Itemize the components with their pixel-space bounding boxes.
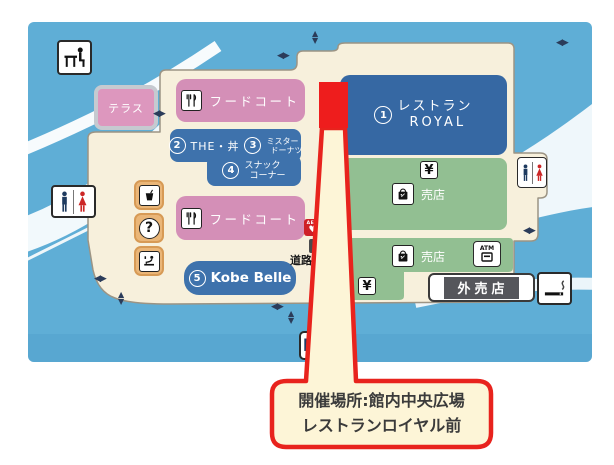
outside-shop-box: 外売店 (428, 273, 535, 302)
baby-care-icon (134, 246, 164, 276)
restaurant-royal-block: 1 レストラン ROYAL (340, 75, 507, 155)
kobe-belle-block: 5 Kobe Belle (184, 261, 296, 295)
royal-label-2: ROYAL (397, 115, 472, 131)
shop-upper-row: 売店 (392, 183, 445, 205)
royal-label-1: レストラン (397, 99, 472, 115)
food-court-1-block: フードコート (176, 79, 305, 122)
shopping-bag-icon (392, 245, 414, 267)
snack-corner-block: 4 スナック コーナー (207, 155, 301, 186)
arrow-marker-icon: ◀▶ (277, 52, 289, 61)
fork-knife-icon (181, 208, 202, 229)
atm-icon: ATM (473, 241, 501, 267)
road-info-display (309, 239, 326, 253)
outside-shop-label: 外売店 (444, 277, 518, 299)
arrow-marker-icon: ◀▶ (556, 39, 568, 48)
toilet-icon (51, 185, 96, 218)
arrow-marker-icon: ◀▶ (523, 227, 535, 236)
snack-corner-label-1: スナック (244, 161, 285, 171)
event-callout-line2: レストランロイヤル前 (302, 414, 462, 439)
snack-corner-label-2: コーナー (244, 171, 285, 181)
kobe-belle-label: Kobe Belle (211, 270, 292, 286)
vending-drink-icon (134, 180, 164, 210)
woman-figure (535, 162, 544, 184)
shop-lower-label: 売店 (421, 248, 445, 265)
food-court-2-label: フードコート (209, 209, 299, 228)
information-label: ? (145, 221, 153, 235)
food-court-2-block: フードコート (176, 196, 305, 240)
rest-area-icon (57, 40, 92, 75)
arrow-marker-icon: ▲▼ (118, 292, 124, 305)
parking-icon: P (299, 331, 319, 360)
service-area-floor-map: テラス フードコート 2 THE・丼 3 ミスター ドーナツ 4 スナック コー… (0, 0, 614, 465)
fork-knife-icon (181, 90, 202, 111)
arrow-marker-icon: ◀▶ (153, 110, 165, 119)
shopping-bag-icon (392, 183, 414, 205)
woman-figure (77, 190, 88, 214)
toilet-icon (517, 157, 547, 188)
terrace-label: テラス (108, 100, 144, 116)
number-5-badge: 5 (189, 270, 206, 287)
event-callout-line1: 開催場所:館内中央広場 (298, 389, 464, 414)
number-3-badge: 3 (244, 137, 261, 154)
smoking-area-icon (537, 272, 572, 305)
shop-lower-row: 売店 (392, 245, 445, 267)
food-court-1-label: フードコート (209, 91, 299, 110)
arrow-marker-icon: ◀▶ (271, 303, 283, 312)
mister-donut-label-1: ミスター (266, 137, 302, 146)
arrow-marker-icon: ◀▶ (94, 275, 106, 284)
man-figure (59, 190, 70, 214)
information-icon: ? (134, 213, 164, 243)
shop-upper-label: 売店 (421, 186, 445, 203)
currency-exchange-icon: ¥ (358, 277, 376, 295)
event-location-marker (319, 82, 348, 128)
number-2-badge: 2 (169, 137, 186, 154)
mister-donut-label-2: ドーナツ (266, 146, 302, 155)
road-info-label: 道路情報 (290, 252, 334, 268)
heart-icon: ♥ (308, 226, 316, 234)
currency-exchange-icon: ¥ (420, 161, 438, 179)
event-callout: 開催場所:館内中央広場 レストランロイヤル前 (272, 382, 491, 445)
bench-table-icon (62, 45, 87, 70)
man-figure (521, 162, 530, 184)
the-don-label: THE・丼 (191, 138, 240, 154)
atm-label: ATM (480, 245, 494, 252)
number-4-badge: 4 (222, 162, 239, 179)
parking-label: P (303, 336, 315, 356)
arrow-marker-icon: ▲▼ (312, 31, 318, 44)
terrace-block: テラス (94, 85, 158, 130)
aed-icon: AED ♥ (304, 219, 321, 236)
number-1-badge: 1 (374, 106, 392, 124)
arrow-marker-icon: ▲▼ (288, 311, 294, 324)
